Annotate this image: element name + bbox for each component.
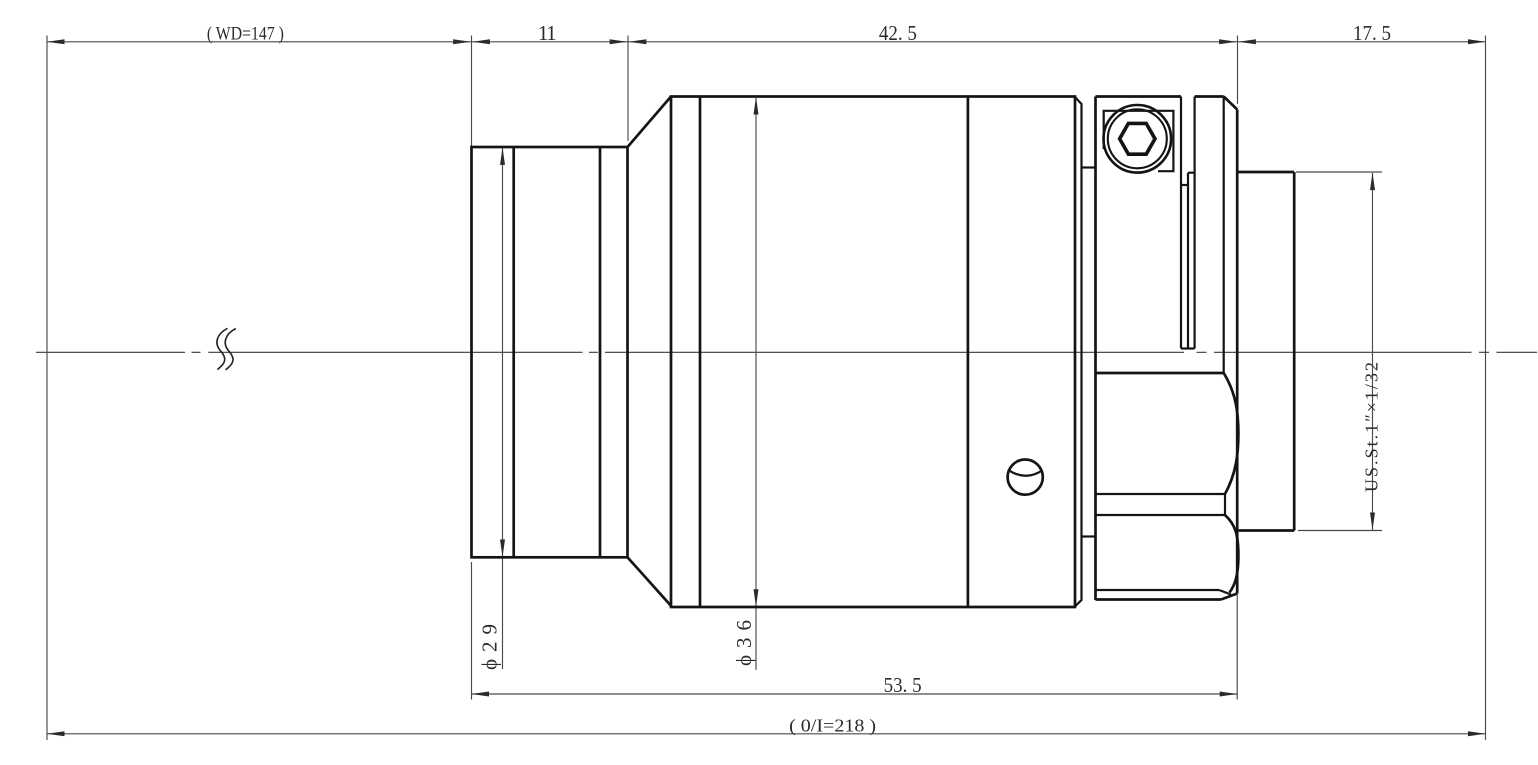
svg-text:ϕ36: ϕ36 — [732, 620, 756, 666]
svg-text:53. 5: 53. 5 — [884, 673, 922, 697]
svg-text:US.St.1″×1/32: US.St.1″×1/32 — [1362, 362, 1382, 492]
svg-text:17. 5: 17. 5 — [1353, 21, 1391, 45]
svg-text:ϕ29: ϕ29 — [478, 624, 502, 670]
svg-text:11: 11 — [538, 21, 556, 45]
svg-text:( WD=147 ): ( WD=147 ) — [207, 25, 284, 45]
svg-text:42. 5: 42. 5 — [879, 21, 917, 45]
svg-text:( 0/I=218 ): ( 0/I=218 ) — [789, 715, 876, 736]
